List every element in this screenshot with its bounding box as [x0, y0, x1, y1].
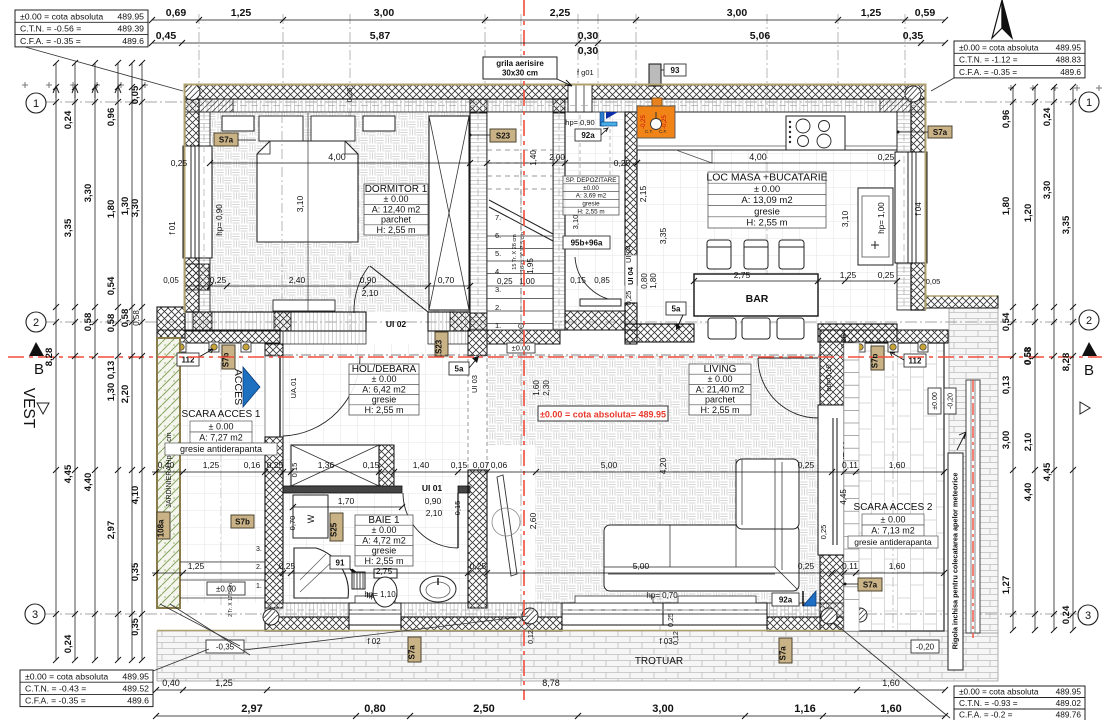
svg-text:f 01: f 01 [168, 221, 177, 235]
svg-text:Rigola inchisa pentru colecata: Rigola inchisa pentru colecatarea apelor… [951, 473, 960, 650]
svg-text:± 0.00: ± 0.00 [708, 374, 733, 384]
svg-text:TROTUAR: TROTUAR [635, 656, 683, 667]
svg-text:0,58: 0,58 [83, 313, 94, 332]
svg-text:92a: 92a [779, 595, 793, 604]
svg-text:S7a: S7a [408, 645, 417, 660]
svg-text:2.: 2. [495, 303, 501, 312]
svg-text:0,12: 0,12 [673, 631, 680, 645]
svg-text:8,28: 8,28 [44, 348, 55, 367]
svg-text:±0.00 = cota absoluta: ±0.00 = cota absoluta [959, 42, 1039, 52]
svg-text:parchet: parchet [705, 395, 736, 405]
svg-text:H: 2,55 m: H: 2,55 m [700, 405, 739, 415]
svg-text:0,25: 0,25 [798, 561, 815, 571]
svg-text:±0.00 = cota absoluta: ±0.00 = cota absoluta [20, 11, 103, 21]
svg-text:gresie antiderapanta: gresie antiderapanta [180, 444, 262, 454]
svg-text:1,60: 1,60 [882, 678, 900, 688]
svg-text:2: 2 [33, 317, 39, 329]
svg-text:1,70: 1,70 [338, 496, 355, 506]
svg-text:0,96: 0,96 [106, 108, 117, 127]
svg-text:0,25: 0,25 [798, 460, 815, 470]
svg-text:0,90: 0,90 [360, 275, 377, 285]
svg-text:± 0.00: ± 0.00 [209, 422, 234, 432]
svg-text:1: 1 [1086, 97, 1092, 109]
svg-text:C.T.N. = -0.93 =: C.T.N. = -0.93 = [959, 698, 1018, 708]
svg-text:5,00: 5,00 [601, 460, 618, 470]
svg-text:1.: 1. [495, 321, 501, 330]
svg-text:-0,20: -0,20 [916, 642, 935, 651]
svg-text:hp= 1,10: hp= 1,10 [364, 590, 396, 599]
svg-text:1,60: 1,60 [889, 561, 906, 571]
svg-text:489.6: 489.6 [127, 696, 149, 706]
svg-text:0,35: 0,35 [130, 618, 140, 636]
svg-text:0,13: 0,13 [106, 361, 117, 380]
svg-text:0,54: 0,54 [106, 276, 117, 295]
svg-text:3: 3 [1085, 610, 1091, 622]
svg-text:±0.00: ±0.00 [932, 392, 939, 410]
svg-text:2,40: 2,40 [289, 275, 306, 285]
svg-text:1,25: 1,25 [231, 7, 252, 19]
svg-text:C.F.A. = -0.35 =: C.F.A. = -0.35 = [959, 67, 1017, 77]
svg-text:30x30 cm: 30x30 cm [502, 69, 538, 78]
svg-text:UI 01: UI 01 [422, 483, 443, 493]
svg-text:3,35: 3,35 [63, 218, 74, 237]
svg-text:hp=0,10: hp=0,10 [824, 364, 833, 391]
svg-text:2,75: 2,75 [734, 270, 751, 280]
svg-text:2: 2 [1086, 315, 1092, 327]
svg-text:-0,25: -0,25 [641, 115, 647, 129]
svg-text:0,15: 0,15 [453, 501, 462, 516]
svg-text:1,40: 1,40 [413, 460, 430, 470]
svg-text:1,00: 1,00 [519, 277, 535, 286]
svg-text:A: 6,42 m2: A: 6,42 m2 [362, 384, 406, 394]
svg-text:15 Tr. X 28 cm: 15 Tr. X 28 cm [512, 234, 518, 270]
svg-text:8,78: 8,78 [542, 678, 560, 688]
svg-text:108a: 108a [157, 519, 166, 537]
svg-text:2,30: 2,30 [542, 380, 551, 396]
svg-text:4,40: 4,40 [1023, 483, 1034, 502]
svg-text:hp= 0,90: hp= 0,90 [215, 204, 224, 236]
svg-text:S7b: S7b [235, 517, 250, 526]
svg-text:±0.00 = cota absoluta: ±0.00 = cota absoluta [959, 687, 1039, 697]
svg-text:3,00: 3,00 [1001, 431, 1012, 450]
svg-text:93: 93 [671, 66, 680, 75]
svg-text:UI 03: UI 03 [470, 375, 479, 393]
svg-text:0,05: 0,05 [130, 85, 141, 104]
svg-text:S25: S25 [330, 522, 339, 537]
svg-text:gresie: gresie [372, 395, 397, 405]
svg-text:1,20: 1,20 [1023, 204, 1034, 223]
svg-text:H: 2,55 m: H: 2,55 m [746, 218, 787, 229]
svg-text:2,97: 2,97 [106, 521, 117, 540]
svg-text:0,15: 0,15 [451, 460, 468, 470]
svg-text:0,15: 0,15 [363, 460, 380, 470]
svg-text:C.F.A. = -0.35 =: C.F.A. = -0.35 = [20, 36, 81, 46]
svg-text:1.: 1. [256, 583, 262, 590]
svg-text:UA.01: UA.01 [289, 378, 298, 399]
svg-text:0,58: 0,58 [132, 310, 141, 326]
svg-text:0,11: 0,11 [842, 460, 858, 470]
svg-text:489.39: 489.39 [117, 24, 144, 34]
svg-text:± 0.00: ± 0.00 [372, 374, 397, 384]
svg-text:A: 3,69 m2: A: 3,69 m2 [576, 193, 607, 200]
svg-text:0,30: 0,30 [578, 30, 599, 42]
svg-text:5a: 5a [672, 304, 681, 313]
svg-text:4,45: 4,45 [1042, 462, 1053, 481]
svg-text:489.02: 489.02 [1056, 698, 1082, 708]
svg-text:2,15: 2,15 [638, 185, 648, 202]
svg-text:-0,20: -0,20 [948, 393, 955, 409]
svg-text:0,25: 0,25 [497, 277, 513, 286]
svg-text:3,00: 3,00 [727, 7, 748, 19]
svg-text:2,60: 2,60 [528, 512, 538, 529]
svg-text:H: 2,55 m: H: 2,55 m [577, 208, 604, 215]
svg-text:3,35: 3,35 [1061, 215, 1072, 234]
svg-text:2,10: 2,10 [426, 508, 443, 518]
svg-text:UI 04: UI 04 [626, 266, 635, 285]
svg-text:0,24: 0,24 [1061, 605, 1072, 624]
svg-text:1,25: 1,25 [203, 460, 220, 470]
svg-text:5,06: 5,06 [750, 30, 771, 42]
svg-text:±0.00 = cota absoluta: ±0.00 = cota absoluta [25, 671, 108, 681]
svg-text:0,96: 0,96 [1001, 110, 1012, 129]
svg-text:0,70: 0,70 [288, 516, 297, 531]
svg-text:2.: 2. [256, 564, 262, 571]
svg-text:0,58: 0,58 [106, 314, 117, 333]
svg-text:1,80: 1,80 [649, 273, 658, 289]
svg-text:8,28: 8,28 [1061, 353, 1072, 372]
svg-text:5,00: 5,00 [633, 561, 650, 571]
svg-text:92a: 92a [581, 131, 595, 140]
svg-text:3,35: 3,35 [658, 227, 668, 244]
svg-text:S7a: S7a [219, 135, 234, 144]
svg-text:1,25: 1,25 [188, 561, 205, 571]
svg-text:0,69: 0,69 [166, 7, 187, 19]
svg-text:1,25: 1,25 [840, 270, 857, 280]
svg-text:SCARA ACCES 1: SCARA ACCES 1 [182, 409, 261, 420]
svg-text:1,25: 1,25 [861, 7, 882, 19]
svg-text:±0.00: ±0.00 [583, 185, 599, 192]
svg-text:C.F.: C.F. [659, 129, 667, 134]
svg-text:A: 7,27 m2: A: 7,27 m2 [199, 433, 243, 443]
svg-text:0,58: 0,58 [1022, 347, 1032, 364]
svg-text:5.: 5. [495, 249, 501, 258]
svg-text:C.T.N. = -0.56 =: C.T.N. = -0.56 = [20, 24, 81, 34]
svg-text:0,24: 0,24 [1042, 107, 1053, 126]
svg-text:UI 04: UI 04 [624, 245, 633, 263]
svg-text:3.: 3. [495, 285, 501, 294]
svg-text:489.95: 489.95 [1056, 42, 1082, 52]
svg-text:gresie: gresie [754, 206, 780, 217]
svg-text:0,25: 0,25 [878, 270, 895, 280]
svg-text:2 Tr. X 17,5 cm: 2 Tr. X 17,5 cm [228, 583, 234, 617]
svg-text:0,07: 0,07 [473, 460, 490, 470]
svg-text:0,90: 0,90 [425, 496, 442, 506]
svg-text:3,10: 3,10 [840, 210, 850, 227]
svg-text:C.T.N. = -1.12 =: C.T.N. = -1.12 = [959, 55, 1018, 65]
svg-text:VEST: VEST [20, 388, 37, 429]
svg-text:A: 4,72 m2: A: 4,72 m2 [362, 535, 406, 545]
svg-text:1,60: 1,60 [889, 460, 906, 470]
svg-text:parchet: parchet [381, 215, 412, 225]
svg-text:± 0.00: ± 0.00 [372, 525, 397, 535]
svg-text:2,97: 2,97 [241, 703, 262, 715]
svg-text:5,87: 5,87 [370, 30, 391, 42]
svg-text:hp= 1,00: hp= 1,00 [877, 202, 886, 234]
svg-text:gresie: gresie [582, 200, 600, 207]
svg-text:1,80: 1,80 [1001, 197, 1012, 216]
svg-text:4.: 4. [495, 267, 501, 276]
svg-text:95b+96a: 95b+96a [571, 238, 603, 247]
svg-text:0,13: 0,13 [1001, 376, 1012, 395]
svg-text:0,35: 0,35 [130, 562, 141, 581]
svg-text:488.83: 488.83 [1056, 55, 1082, 65]
svg-text:± 0.00: ± 0.00 [754, 184, 780, 195]
svg-text:± 0.00: ± 0.00 [881, 515, 906, 525]
svg-text:4,45: 4,45 [839, 489, 848, 505]
svg-text:0,24: 0,24 [63, 110, 74, 129]
svg-text:0,25: 0,25 [171, 158, 188, 168]
svg-text:A: 12,40 m2: A: 12,40 m2 [372, 204, 421, 214]
svg-text:4,20: 4,20 [658, 457, 668, 474]
svg-text:S7b: S7b [222, 352, 231, 367]
svg-text:0,25: 0,25 [614, 158, 631, 168]
svg-text:489.52: 489.52 [122, 683, 149, 693]
svg-text:1,95: 1,95 [526, 258, 535, 274]
svg-text:UI 02: UI 02 [386, 319, 407, 329]
svg-text:hp= 0,90: hp= 0,90 [565, 118, 594, 127]
svg-text:hp= 0,70: hp= 0,70 [646, 591, 678, 600]
svg-text:3,30: 3,30 [1042, 181, 1053, 200]
svg-text:489.6: 489.6 [122, 36, 144, 46]
svg-text:1,60: 1,60 [532, 380, 541, 396]
svg-text:W: W [306, 514, 316, 523]
svg-text:4,10: 4,10 [130, 486, 141, 505]
svg-text:0,85: 0,85 [594, 276, 610, 285]
svg-text:2,10: 2,10 [1023, 433, 1034, 452]
svg-text:S23: S23 [435, 339, 444, 354]
svg-text:2,10: 2,10 [362, 288, 379, 298]
svg-text:3,10: 3,10 [295, 195, 305, 212]
svg-text:SCARA ACCES 2: SCARA ACCES 2 [854, 502, 933, 513]
svg-text:1,27: 1,27 [1001, 576, 1012, 595]
svg-text:S7a: S7a [779, 646, 788, 661]
svg-text:4,00: 4,00 [328, 152, 346, 162]
svg-text:0,25: 0,25 [624, 291, 633, 306]
svg-text:0,59: 0,59 [915, 7, 936, 19]
svg-text:C.T.: C.T. [645, 129, 653, 134]
svg-text:0,45: 0,45 [156, 30, 177, 42]
svg-text:489.95: 489.95 [122, 671, 149, 681]
svg-text:H: 2,55 m: H: 2,55 m [364, 405, 403, 415]
svg-text:0,12: 0,12 [528, 630, 535, 644]
svg-text:3,30: 3,30 [83, 184, 94, 203]
svg-text:0,80: 0,80 [364, 703, 385, 715]
svg-text:A: 13,09 m2: A: 13,09 m2 [741, 195, 792, 206]
svg-text:0,11: 0,11 [842, 561, 858, 571]
svg-text:1,80: 1,80 [106, 200, 117, 219]
svg-text:0,40: 0,40 [162, 678, 180, 688]
svg-text:0,58: 0,58 [120, 309, 131, 328]
svg-text:gresie antiderapanta: gresie antiderapanta [854, 537, 932, 547]
svg-text:489.95: 489.95 [117, 11, 144, 21]
svg-text:0,24: 0,24 [63, 634, 74, 653]
svg-text:0,25: 0,25 [668, 613, 675, 627]
svg-text:f g01: f g01 [577, 68, 594, 77]
svg-text:4,00: 4,00 [749, 152, 767, 162]
svg-text:489.95: 489.95 [1056, 687, 1082, 697]
svg-text:1,30: 1,30 [106, 383, 117, 402]
svg-text:7.: 7. [495, 213, 501, 222]
svg-text:S7a: S7a [933, 128, 948, 137]
svg-text:2,75: 2,75 [376, 566, 393, 576]
svg-text:3,10: 3,10 [571, 215, 580, 230]
svg-text:0,05: 0,05 [926, 277, 941, 286]
svg-text:0,25: 0,25 [267, 460, 284, 470]
svg-text:± 0.00: ± 0.00 [384, 194, 409, 204]
svg-text:3,30: 3,30 [130, 199, 141, 218]
svg-text:3,00: 3,00 [374, 7, 395, 19]
svg-text:1,36: 1,36 [318, 460, 335, 470]
svg-text:0,05: 0,05 [163, 276, 179, 285]
svg-text:0,15: 0,15 [290, 463, 299, 478]
svg-text:0,30: 0,30 [578, 45, 599, 57]
svg-text:1,25: 1,25 [215, 678, 233, 688]
svg-text:0,25: 0,25 [210, 275, 227, 285]
svg-text:3: 3 [32, 609, 38, 621]
svg-text:1,16: 1,16 [794, 703, 815, 715]
svg-text:0,80: 0,80 [640, 273, 649, 289]
svg-text:0,16: 0,16 [244, 460, 261, 470]
svg-text:0,70: 0,70 [438, 275, 455, 285]
svg-text:0,25: 0,25 [878, 152, 895, 162]
svg-text:0,40: 0,40 [158, 460, 175, 470]
svg-text:1,40: 1,40 [529, 150, 538, 166]
svg-text:0,25: 0,25 [279, 561, 296, 571]
svg-text:1: 1 [33, 98, 39, 110]
svg-text:H: 2,55 m: H: 2,55 m [376, 225, 415, 235]
svg-text:grila aerisire: grila aerisire [496, 59, 544, 68]
svg-text:489.76: 489.76 [1056, 710, 1082, 720]
svg-text:A: 7,13 m2: A: 7,13 m2 [871, 526, 915, 536]
svg-text:3,00: 3,00 [652, 703, 673, 715]
svg-text:6.: 6. [495, 231, 501, 240]
svg-text:0,25: 0,25 [345, 88, 354, 103]
svg-text:gresie: gresie [372, 546, 397, 556]
svg-text:SP. DEPOZITARE: SP. DEPOZITARE [566, 177, 617, 184]
svg-text:f 03: f 03 [659, 637, 673, 646]
svg-text:3.: 3. [256, 546, 262, 553]
svg-text:f 04: f 04 [914, 202, 923, 216]
svg-text:C.F.A. = -0.2 =: C.F.A. = -0.2 = [959, 710, 1013, 720]
svg-text:ACCES: ACCES [232, 369, 244, 405]
svg-text:0,25: 0,25 [819, 525, 828, 540]
svg-text:2,50: 2,50 [473, 703, 494, 715]
svg-text:C.F.A. = -0.35 =: C.F.A. = -0.35 = [25, 696, 86, 706]
svg-text:5a: 5a [455, 364, 464, 373]
svg-text:489.6: 489.6 [1060, 67, 1081, 77]
svg-text:0,06: 0,06 [491, 460, 508, 470]
svg-text:2,20: 2,20 [120, 385, 131, 404]
svg-text:2,25: 2,25 [550, 7, 571, 19]
svg-text:S23: S23 [496, 131, 511, 140]
svg-text:-0,25: -0,25 [662, 115, 668, 129]
svg-text:2,00: 2,00 [549, 153, 565, 162]
svg-text:B: B [1084, 362, 1094, 379]
svg-text:H: 2,55 m: H: 2,55 m [364, 556, 403, 566]
svg-text:0,54: 0,54 [1001, 312, 1012, 331]
svg-text:91: 91 [336, 558, 345, 567]
svg-text:0,25: 0,25 [470, 561, 487, 571]
svg-text:BAR: BAR [746, 293, 769, 305]
svg-text:0,15: 0,15 [570, 276, 586, 285]
svg-text:f 02: f 02 [367, 637, 381, 646]
svg-text:S7b: S7b [871, 353, 880, 368]
svg-text:LOC MASA +BUCATARIE: LOC MASA +BUCATARIE [706, 172, 827, 184]
svg-text:±0.00 = cota absoluta= 489.95: ±0.00 = cota absoluta= 489.95 [540, 410, 666, 420]
svg-text:1,60: 1,60 [880, 703, 901, 715]
svg-text:A: 21,40 m2: A: 21,40 m2 [696, 384, 745, 394]
svg-text:C.T.N. = -0.43 =: C.T.N. = -0.43 = [25, 683, 86, 693]
svg-text:B: B [34, 361, 44, 378]
svg-text:4,40: 4,40 [83, 473, 94, 492]
svg-text:0,35: 0,35 [903, 30, 924, 42]
svg-text:S7a: S7a [863, 580, 878, 589]
svg-text:4,45: 4,45 [63, 464, 74, 483]
